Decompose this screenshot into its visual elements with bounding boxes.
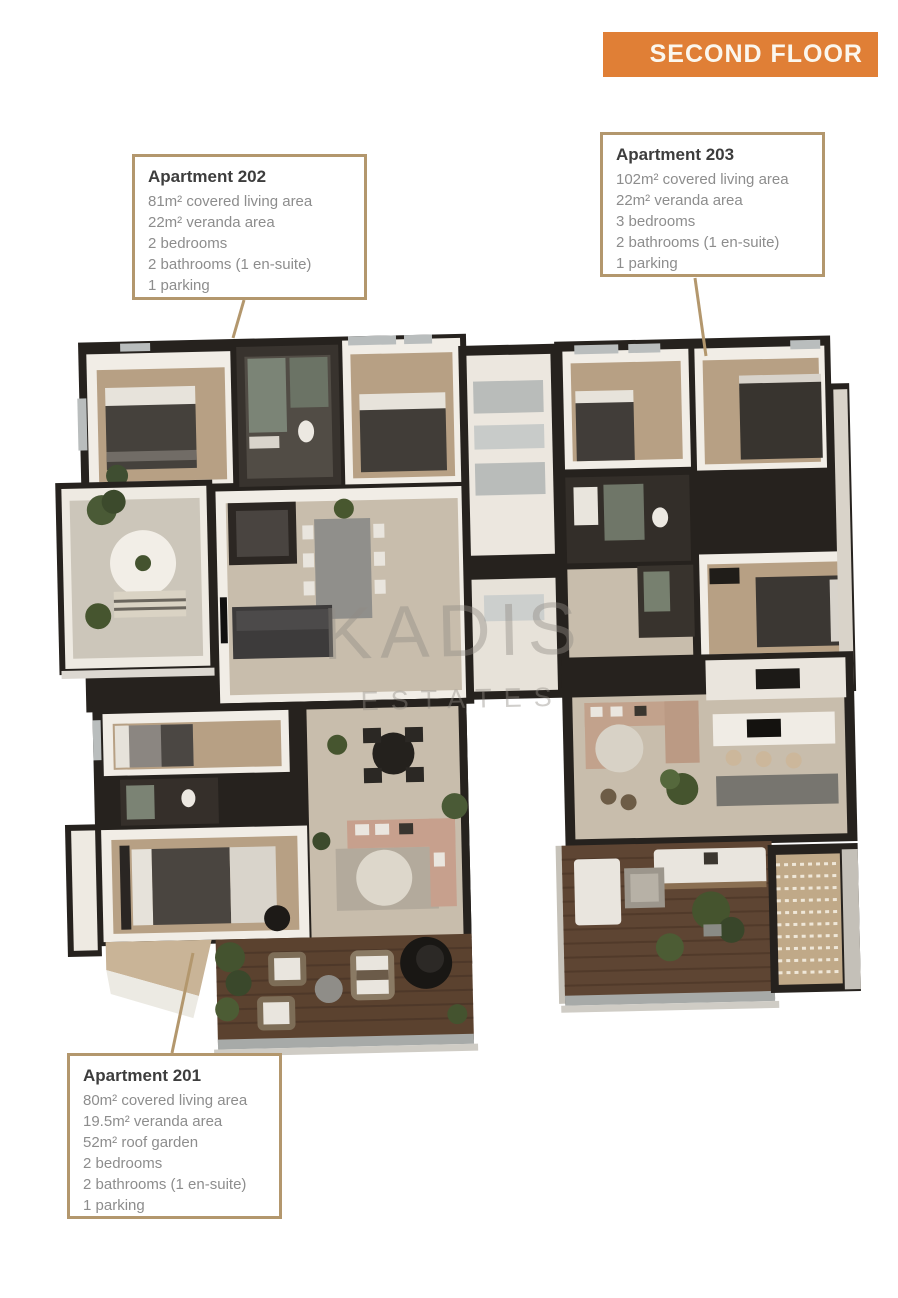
apartment-202-title: Apartment 202	[148, 165, 351, 189]
apartment-202-veranda	[55, 480, 216, 680]
apartment-203-title: Apartment 203	[616, 143, 809, 167]
apartment-201-spec: 52m² roof garden	[83, 1132, 266, 1153]
apartment-202-living	[215, 486, 470, 704]
floor-banner: SECOND FLOOR	[603, 32, 878, 77]
apartment-203-spec: 1 parking	[616, 253, 809, 274]
watermark-brand: KADIS	[322, 586, 586, 675]
apartment-201-spec: 19.5m² veranda area	[83, 1111, 266, 1132]
leader-line-202	[233, 300, 244, 338]
floor-banner-label: SECOND FLOOR	[650, 40, 863, 69]
apartment-203-veranda	[556, 839, 862, 1013]
apartment-201-title: Apartment 201	[83, 1064, 266, 1088]
apartment-201-spec: 80m² covered living area	[83, 1090, 266, 1111]
apartment-203-spec: 102m² covered living area	[616, 169, 809, 190]
apartment-203-spec: 2 bathrooms (1 en-suite)	[616, 232, 809, 253]
callout-apartment-202: Apartment 202 81m² covered living area 2…	[132, 154, 367, 300]
apartment-202-spec: 1 parking	[148, 275, 351, 296]
apartment-201-spec: 2 bedrooms	[83, 1153, 266, 1174]
apartment-201-spec: 2 bathrooms (1 en-suite)	[83, 1174, 266, 1195]
brochure-page: KADIS ESTATES SECOND FLOOR Apartment 202…	[0, 0, 898, 1298]
apartment-201-spec: 1 parking	[83, 1195, 266, 1216]
apartment-203-living	[561, 651, 857, 848]
building-core	[458, 344, 566, 700]
apartment-202-spec: 2 bedrooms	[148, 233, 351, 254]
apartment-201-roof-garden	[212, 934, 479, 1057]
watermark: KADIS ESTATES	[322, 586, 587, 717]
apartment-202-spec: 22m² veranda area	[148, 212, 351, 233]
apartment-202-spec: 2 bathrooms (1 en-suite)	[148, 254, 351, 275]
apartment-201-wing	[62, 698, 473, 1021]
callout-apartment-203: Apartment 203 102m² covered living area …	[600, 132, 825, 277]
leader-line-203	[695, 278, 706, 356]
apartment-203-wing	[554, 335, 856, 698]
apartment-203-spec: 3 bedrooms	[616, 211, 809, 232]
apartment-202-bedroom-wing	[76, 334, 474, 713]
callout-apartment-201: Apartment 201 80m² covered living area 1…	[67, 1053, 282, 1219]
apartment-202-spec: 81m² covered living area	[148, 191, 351, 212]
watermark-sub: ESTATES	[360, 682, 564, 717]
leader-line-201	[172, 953, 193, 1053]
apartment-203-spec: 22m² veranda area	[616, 190, 809, 211]
